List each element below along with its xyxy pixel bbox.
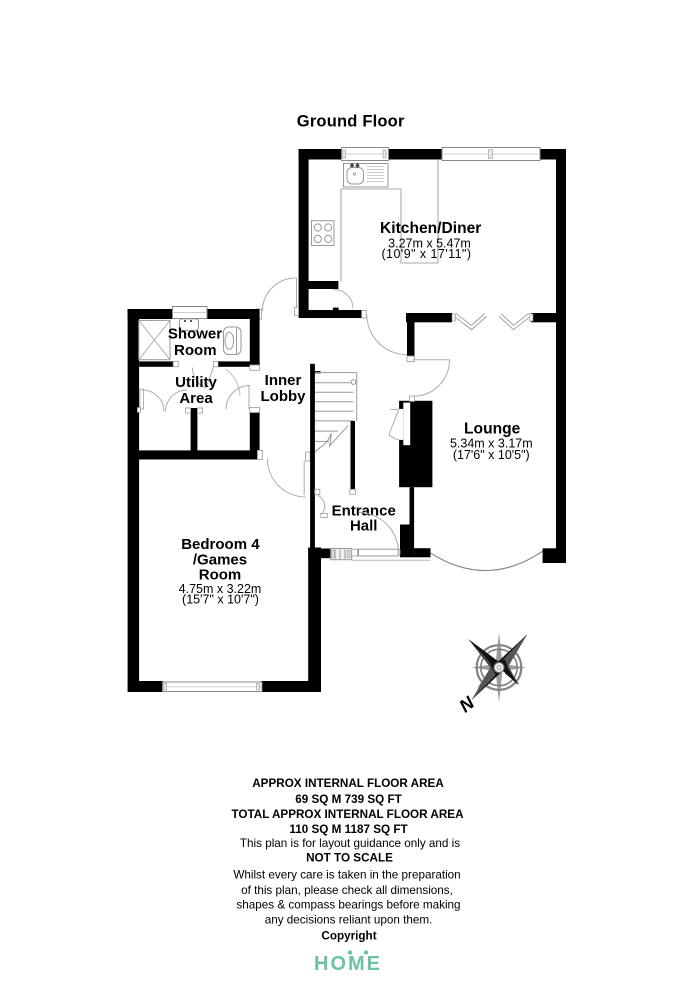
svg-text:This plan is for layout guidan: This plan is for layout guidance only an… — [240, 837, 460, 850]
svg-text:Ground Floor: Ground Floor — [297, 113, 405, 131]
svg-text:TOTAL APPROX INTERNAL FLOOR AR: TOTAL APPROX INTERNAL FLOOR AREA — [231, 808, 464, 821]
svg-text:Kitchen/Diner: Kitchen/Diner — [380, 220, 481, 237]
svg-text:(15'7" x 10'7"): (15'7" x 10'7") — [182, 593, 259, 607]
svg-text:Shower: Shower — [168, 326, 222, 343]
svg-text:Area: Area — [179, 390, 213, 407]
svg-text:69 SQ M 739 SQ FT: 69 SQ M 739 SQ FT — [295, 793, 402, 806]
svg-text:Hall: Hall — [350, 518, 378, 535]
svg-text:of this plan, please check all: of this plan, please check all dimension… — [241, 884, 453, 897]
svg-text:Bedroom 4: Bedroom 4 — [181, 536, 260, 553]
svg-text:any decisions reliant upon the: any decisions reliant upon them. — [265, 914, 433, 927]
svg-text:Lobby: Lobby — [261, 388, 307, 405]
svg-text:shapes & compass bearings befo: shapes & compass bearings before making — [236, 899, 460, 912]
svg-text:Utility: Utility — [175, 374, 217, 391]
svg-text:Inner: Inner — [265, 372, 302, 389]
svg-text:(10'9" x 17'11"): (10'9" x 17'11") — [381, 247, 471, 261]
svg-text:APPROX INTERNAL FLOOR AREA: APPROX INTERNAL FLOOR AREA — [252, 777, 444, 790]
svg-text:Room: Room — [174, 342, 217, 359]
svg-text:(17'6" x 10'5"): (17'6" x 10'5") — [453, 448, 530, 462]
svg-text:Copyright: Copyright — [321, 929, 376, 942]
svg-text:Lounge: Lounge — [464, 421, 521, 438]
svg-text:110 SQ M 1187 SQ FT: 110 SQ M 1187 SQ FT — [289, 823, 408, 836]
svg-text:NOT TO SCALE: NOT TO SCALE — [306, 852, 393, 865]
svg-text:HOME: HOME — [314, 953, 382, 975]
svg-text:Whilst every care is taken in: Whilst every care is taken in the prepar… — [233, 869, 460, 882]
